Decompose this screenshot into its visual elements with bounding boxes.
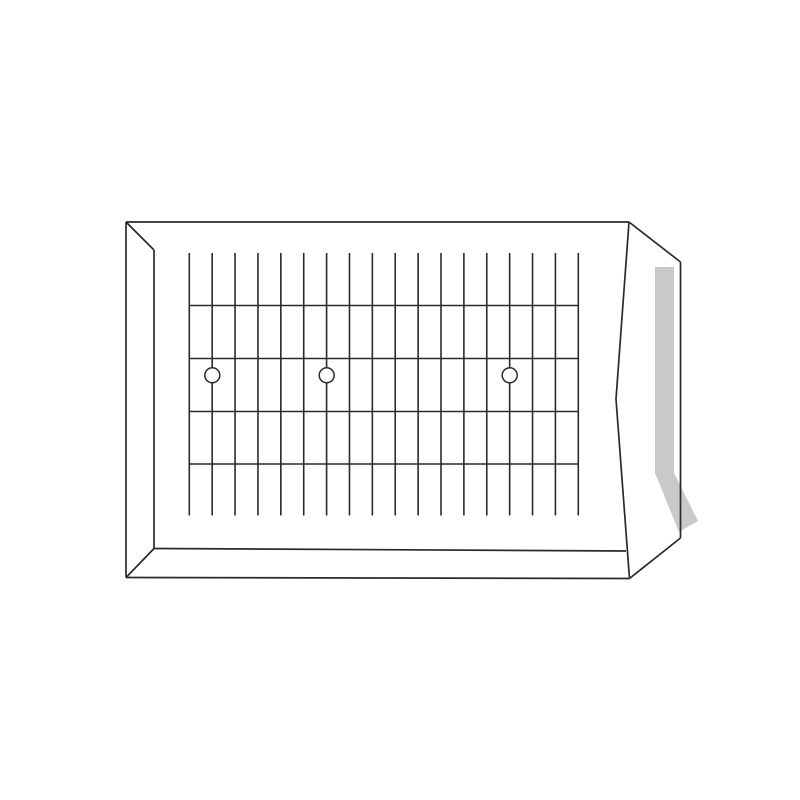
envelope-grid-panel-illustration (0, 0, 800, 800)
eyelet (319, 368, 334, 383)
front-bottom-outer-edge (126, 578, 630, 579)
eyelet (205, 368, 220, 383)
seal-strip-vertical (655, 267, 674, 473)
eyelet (502, 368, 517, 383)
illustration-stage (0, 0, 800, 800)
